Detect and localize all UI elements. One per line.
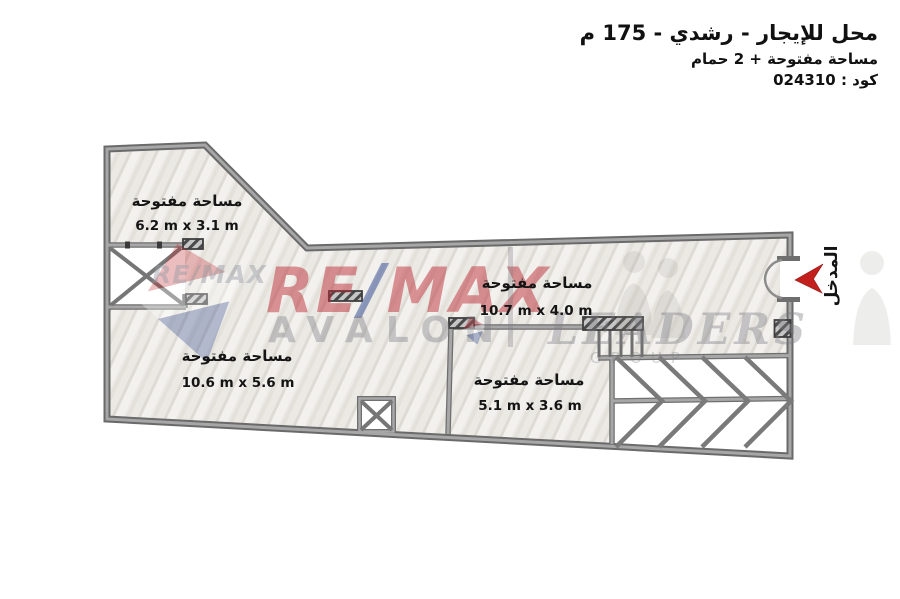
listing-header: محل للإيجار - رشدي - 175 م مساحة مفتوحة … bbox=[580, 20, 878, 89]
room1-label: مساحة مفتوحة bbox=[132, 192, 243, 210]
room4-label: مساحة مفتوحة bbox=[474, 371, 585, 389]
listing-subtitle: مساحة مفتوحة + 2 حمام bbox=[580, 50, 878, 68]
listing-title: محل للإيجار - رشدي - 175 م bbox=[580, 20, 878, 46]
room3-dims: 10.6 m x 5.6 m bbox=[182, 375, 295, 391]
entrance-label: المدخل bbox=[822, 246, 842, 307]
room4-dims: 5.1 m x 3.6 m bbox=[478, 398, 581, 414]
floorplan-drawing bbox=[0, 0, 900, 599]
listing-code: كود : 024310 bbox=[580, 71, 878, 89]
room1-dims: 6.2 m x 3.1 m bbox=[135, 218, 238, 234]
room3-label: مساحة مفتوحة bbox=[182, 347, 293, 365]
room2-dims: 10.7 m x 4.0 m bbox=[480, 303, 593, 319]
room2-label: مساحة مفتوحة bbox=[482, 274, 593, 292]
floorplan-page: RE/MAX RE/MAX AVALON LEADERS GROUP محل ل… bbox=[0, 0, 900, 599]
